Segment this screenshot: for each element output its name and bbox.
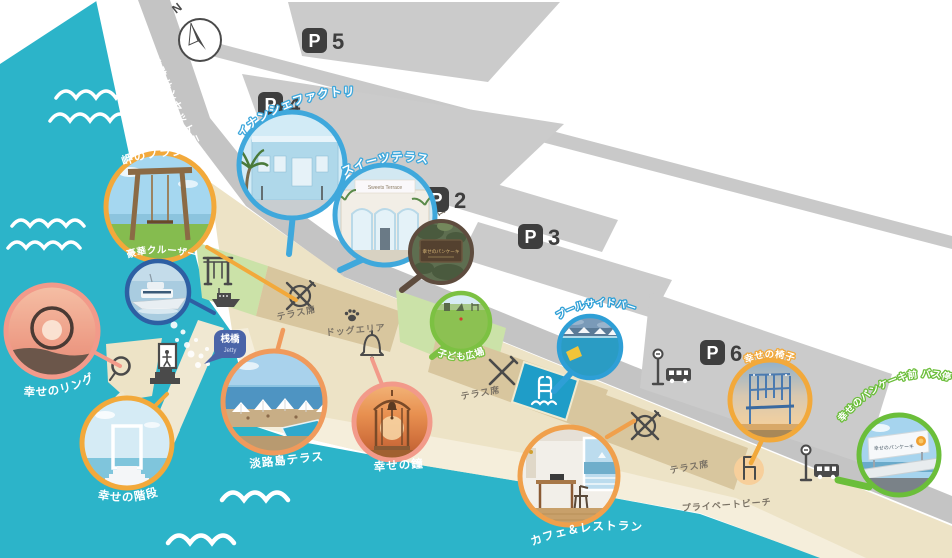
parking-badge-p5: P 5 xyxy=(302,28,344,54)
parking-p-glyph: P xyxy=(308,31,320,51)
parking-number: 5 xyxy=(332,29,344,54)
photo-sign-text: 幸せのパンケーキ xyxy=(423,248,460,255)
jetty-label-jp: 桟橋 xyxy=(220,333,240,345)
jetty-label-en: Jetty xyxy=(224,348,237,354)
chair-icon xyxy=(734,455,764,485)
spot-kodomo-hiroba[interactable]: 子ども広場 xyxy=(432,293,490,363)
parking-badge-p6: P 6 xyxy=(700,340,742,366)
resort-map: テラス席 テラス席 テラス席 ドッグエリア 入口 プライベートビーチ 淡路サンセ… xyxy=(0,0,952,558)
parking-number: 2 xyxy=(454,188,466,213)
parking-badge-p3: P 3 xyxy=(518,224,560,250)
photo-sign-text: Sweets Terrace xyxy=(368,185,403,191)
parking-p-glyph: P xyxy=(706,343,718,363)
parking-number: 6 xyxy=(730,341,742,366)
parking-number: 3 xyxy=(548,225,560,250)
parking-p-glyph: P xyxy=(524,227,536,247)
